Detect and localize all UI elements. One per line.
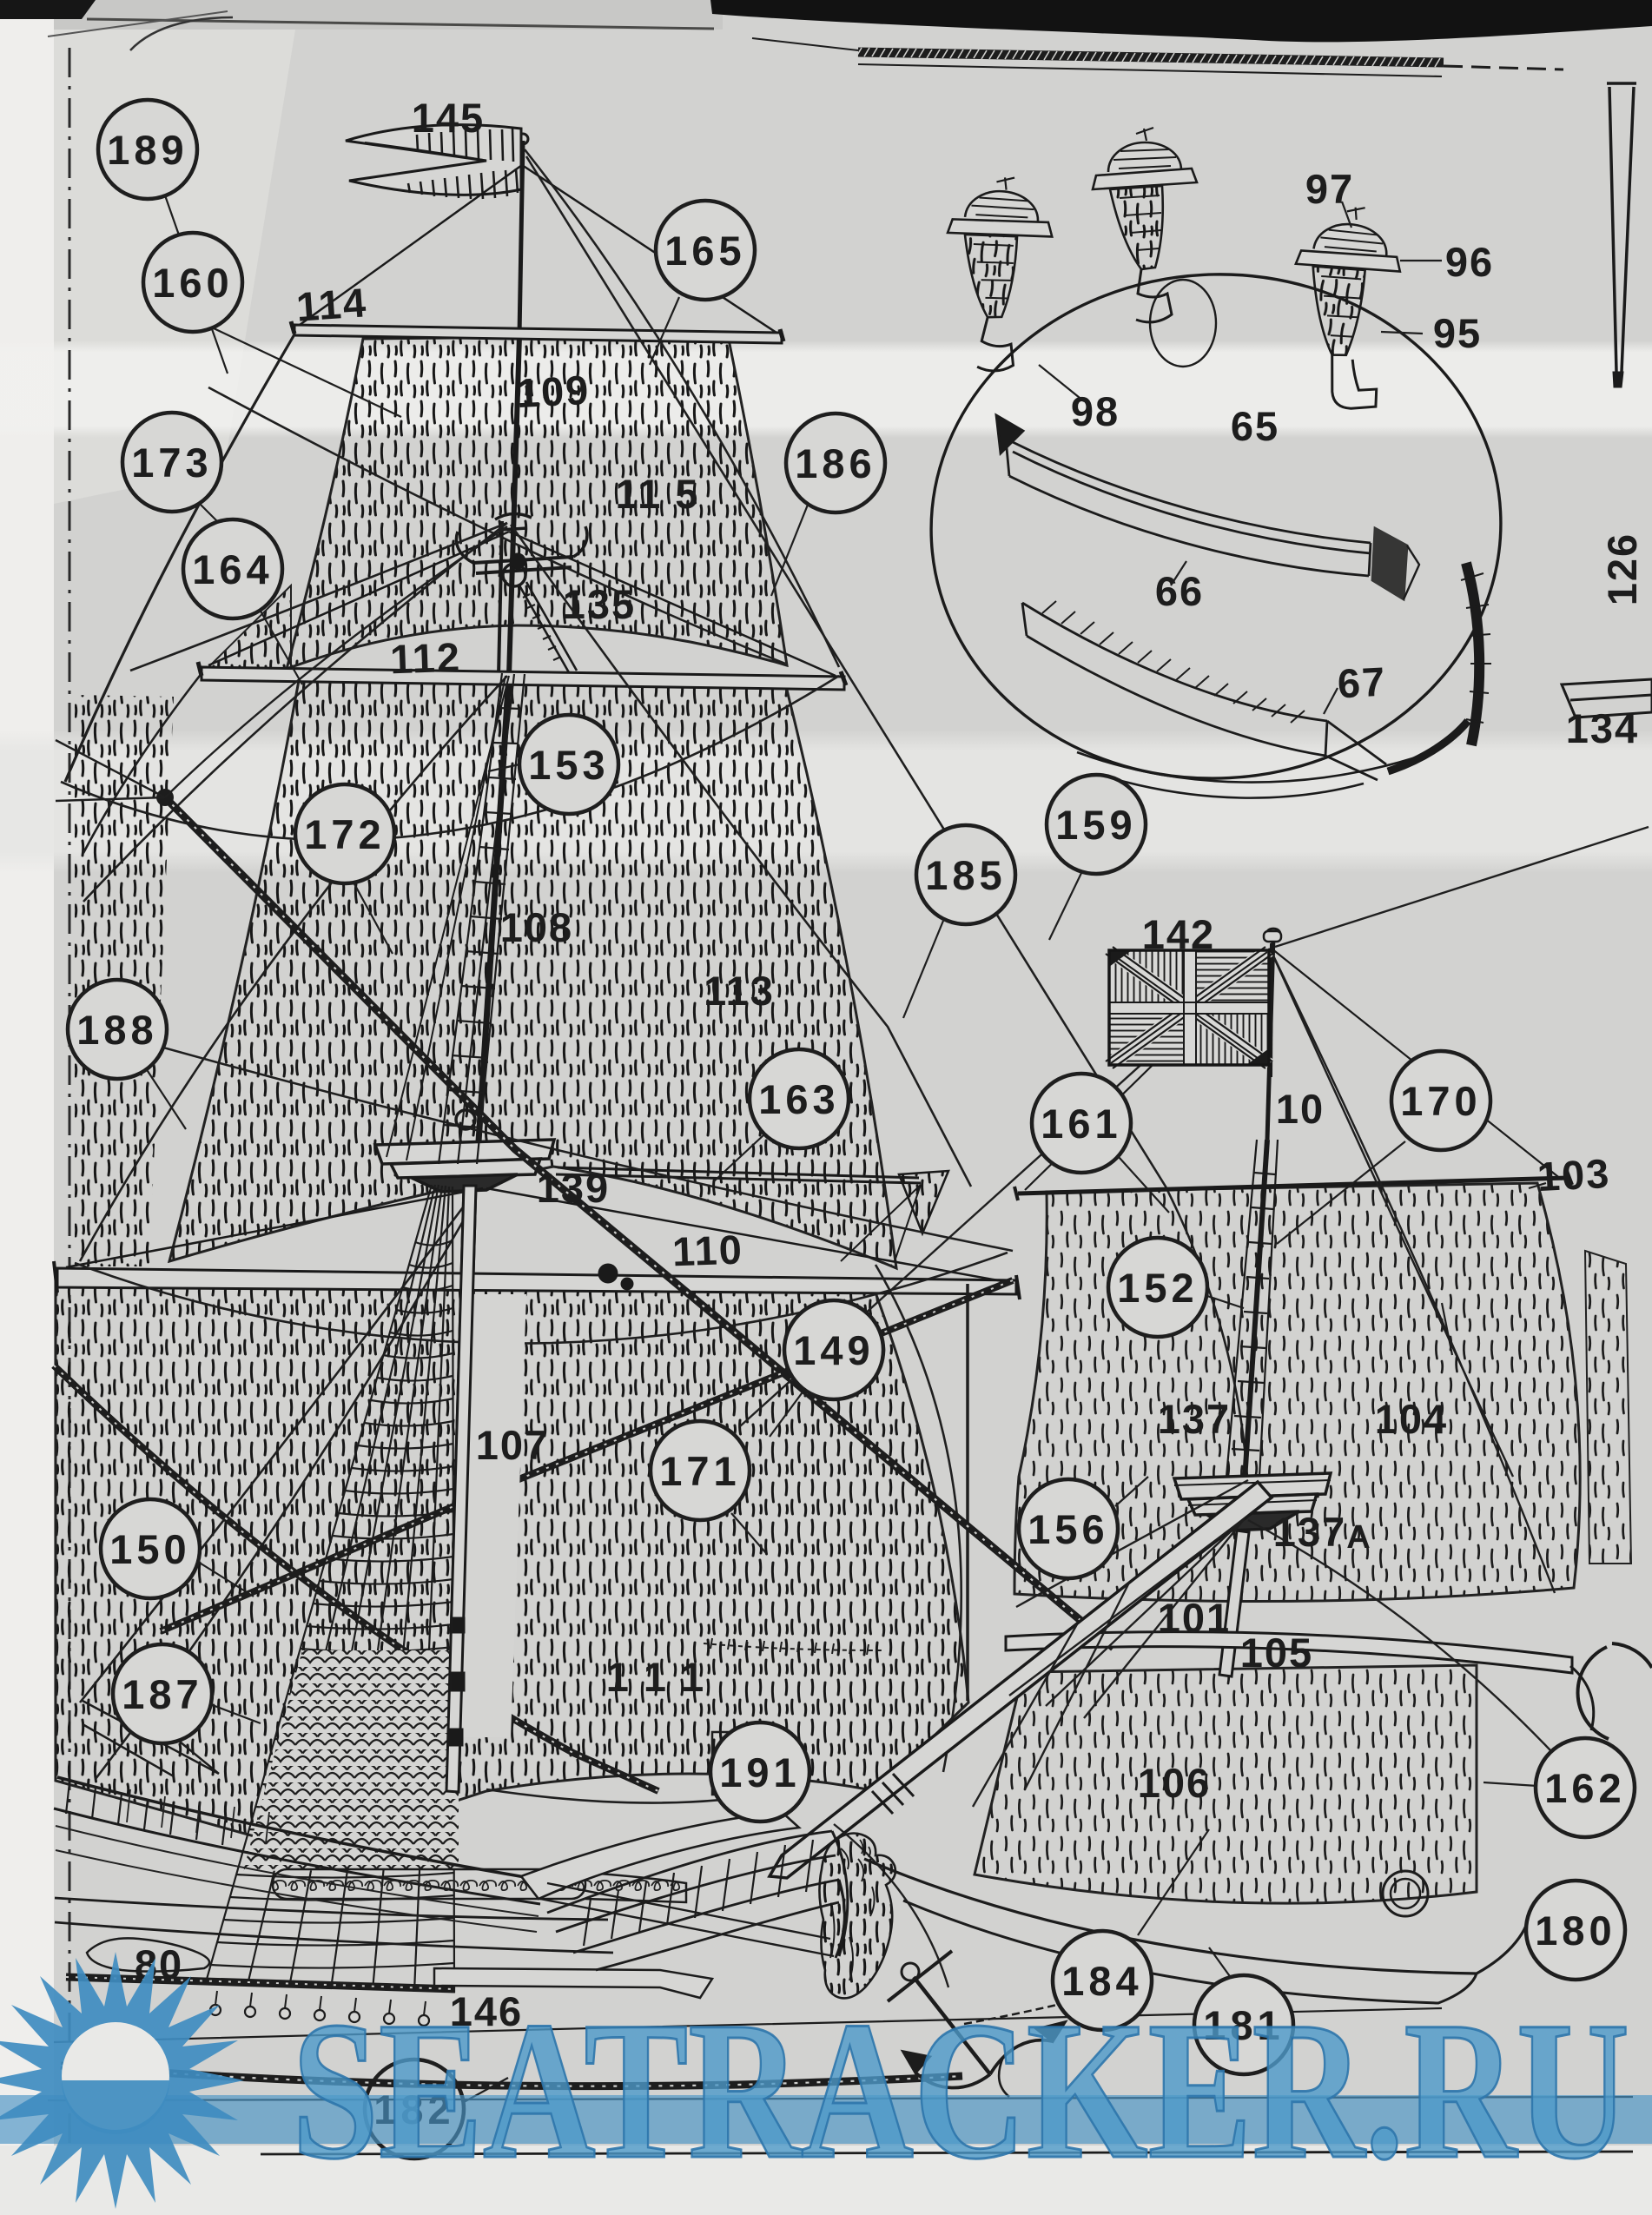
svg-text:135: 135 [563, 581, 636, 627]
svg-text:113: 113 [704, 968, 775, 1014]
svg-text:171: 171 [659, 1448, 740, 1494]
svg-text:163: 163 [758, 1076, 839, 1122]
svg-text:160: 160 [152, 260, 233, 306]
svg-text:180: 180 [1535, 1908, 1616, 1954]
svg-text:186: 186 [795, 440, 876, 486]
svg-text:95: 95 [1433, 310, 1482, 356]
svg-text:101: 101 [1158, 1595, 1231, 1641]
svg-text:80: 80 [135, 1941, 183, 1987]
svg-text:104: 104 [1375, 1396, 1448, 1442]
svg-text:145: 145 [412, 95, 485, 141]
svg-text:10: 10 [1276, 1086, 1325, 1132]
svg-text:108: 108 [500, 904, 573, 950]
svg-text:185: 185 [925, 852, 1006, 898]
svg-text:97: 97 [1305, 166, 1354, 212]
svg-text:134: 134 [1566, 705, 1639, 751]
svg-text:110: 110 [671, 1227, 744, 1275]
svg-text:173: 173 [131, 440, 212, 486]
svg-text:106: 106 [1138, 1760, 1211, 1806]
svg-text:161: 161 [1041, 1101, 1121, 1147]
svg-text:114: 114 [294, 279, 368, 330]
svg-text:165: 165 [664, 228, 745, 274]
svg-text:96: 96 [1445, 239, 1494, 285]
svg-text:150: 150 [109, 1526, 190, 1572]
svg-text:A: A [1346, 1519, 1371, 1556]
svg-text:105: 105 [1240, 1630, 1313, 1676]
svg-text:109: 109 [515, 367, 591, 416]
svg-text:103: 103 [1536, 1150, 1611, 1200]
svg-text:66: 66 [1155, 568, 1204, 614]
svg-text:189: 189 [107, 127, 188, 173]
svg-text:153: 153 [528, 742, 609, 788]
svg-text:137: 137 [1273, 1509, 1346, 1555]
svg-text:159: 159 [1055, 802, 1136, 848]
svg-text:139: 139 [537, 1165, 610, 1211]
svg-text:1 1 1: 1 1 1 [606, 1654, 706, 1700]
svg-text:162: 162 [1544, 1765, 1625, 1811]
svg-text:149: 149 [793, 1327, 874, 1373]
svg-text:187: 187 [122, 1671, 202, 1717]
svg-text:107: 107 [476, 1422, 549, 1468]
svg-text:142: 142 [1142, 911, 1215, 957]
svg-text:98: 98 [1071, 388, 1120, 434]
svg-text:65: 65 [1231, 403, 1279, 449]
svg-text:152: 152 [1117, 1265, 1198, 1311]
svg-text:170: 170 [1400, 1078, 1481, 1124]
svg-text:172: 172 [304, 811, 385, 857]
svg-text:SEATRACKER.RU: SEATRACKER.RU [292, 1981, 1629, 2200]
svg-text:137: 137 [1158, 1396, 1231, 1442]
svg-text:112: 112 [389, 634, 462, 683]
svg-text:188: 188 [76, 1007, 157, 1053]
svg-text:191: 191 [719, 1749, 800, 1795]
svg-text:67: 67 [1337, 658, 1388, 707]
svg-text:11 5: 11 5 [616, 471, 700, 517]
svg-text:164: 164 [192, 546, 273, 592]
svg-text:126: 126 [1599, 532, 1645, 605]
svg-text:156: 156 [1028, 1506, 1108, 1552]
